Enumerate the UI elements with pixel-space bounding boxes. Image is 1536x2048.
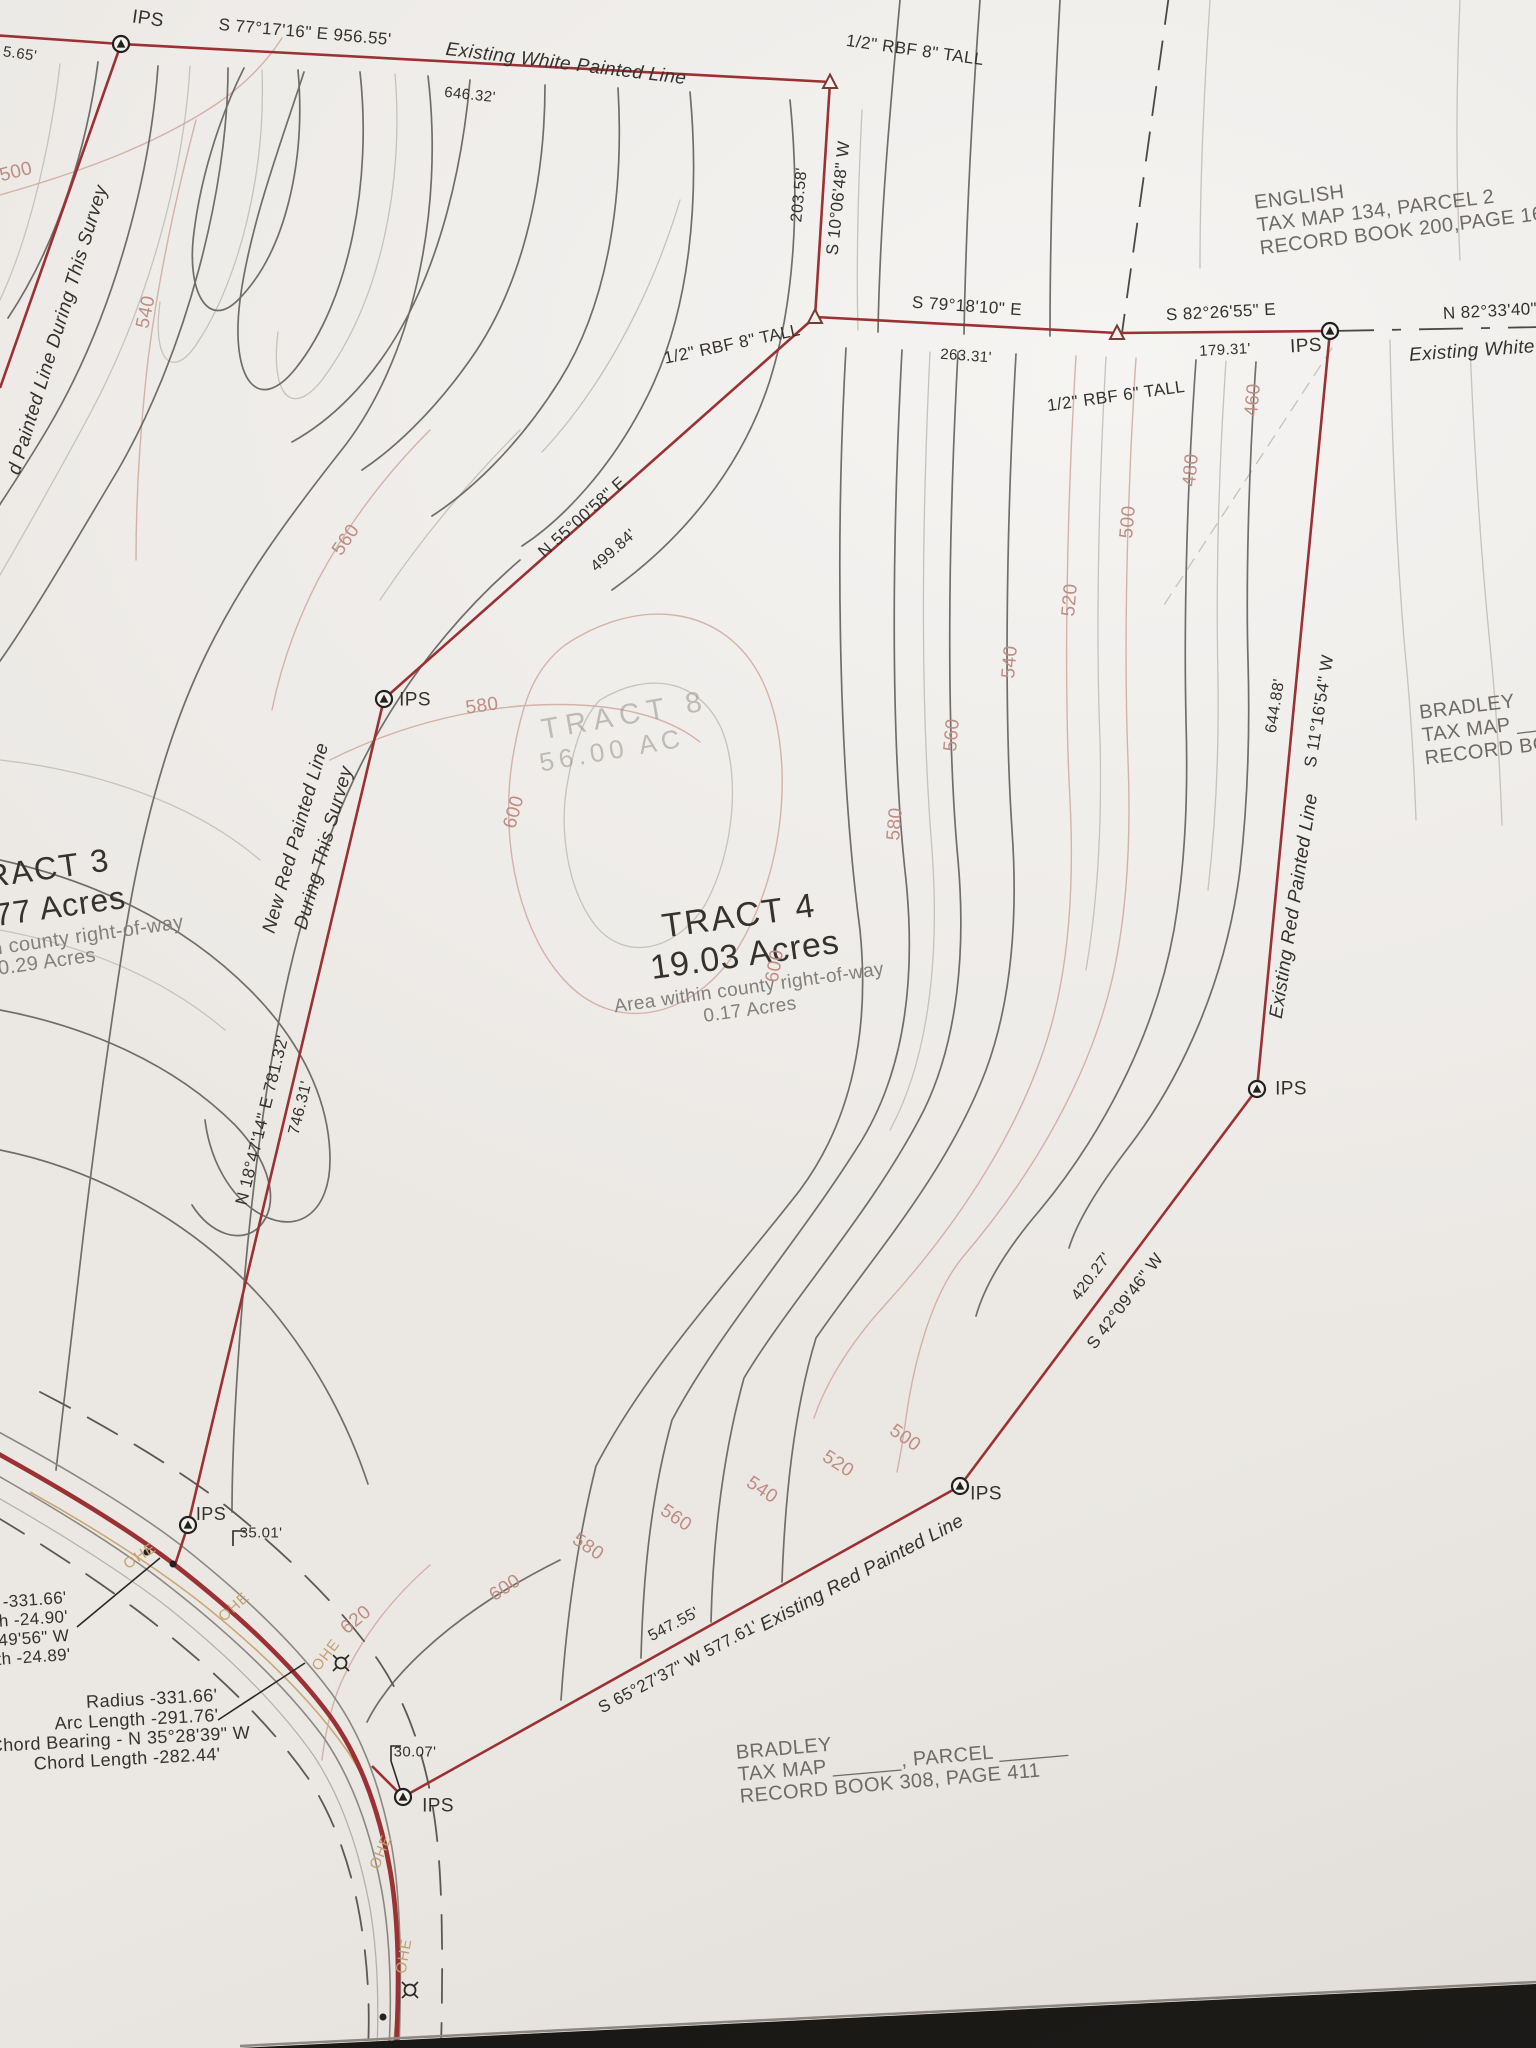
ips-marker [376, 691, 392, 707]
utility-pole-symbol [402, 1982, 418, 1998]
contour-elevation-label: 580 [464, 694, 499, 717]
ips-label: IPS [422, 1797, 454, 1816]
photo-edge-shadow [240, 1984, 1536, 2048]
ips-label: IPS [1275, 1080, 1307, 1099]
ips-marker [1322, 323, 1338, 339]
contour-elevation-label: 520 [1059, 583, 1081, 617]
ips-label: IPS [1290, 336, 1323, 357]
ips-label: IPS [399, 691, 431, 710]
distance-label: 30.07' [394, 1745, 437, 1760]
contour-elevation-label: 500 [1117, 505, 1139, 539]
curve-table-main: Radius -331.66' Arc Length -291.76' Chor… [0, 1686, 221, 1776]
ips-label: IPS [196, 1505, 226, 1523]
point-dot [170, 1561, 177, 1568]
ips-label: IPS [970, 1485, 1002, 1504]
contour-elevation-label: 480 [1180, 453, 1202, 487]
ips-marker [113, 36, 129, 52]
distance-label: 263.31' [940, 347, 992, 366]
distance-label: 179.31' [1199, 341, 1251, 359]
contour-elevation-label: 460 [1242, 383, 1264, 417]
ips-label: IPS [131, 7, 165, 30]
survey-plat-photo: 5.65' IPS S 77°17'16" E 956.55' Existing… [0, 0, 1536, 2048]
distance-label: 35.01' [240, 1526, 283, 1541]
contour-elevation-label: 580 [884, 807, 906, 841]
distance-label: 5.65' [2, 44, 38, 64]
adjoiner-dashed-line [1122, 0, 1169, 333]
white-line-east-dashed [1330, 327, 1536, 331]
curve-table-left-cut: -331.66' h -24.90' 49'56" W th -24.89' [0, 1588, 71, 1678]
point-dot [380, 2014, 387, 2021]
ips-marker [1249, 1081, 1265, 1097]
utility-pole-symbol [333, 1655, 349, 1671]
contour-elevation-label: 540 [999, 645, 1021, 679]
ips-marker [395, 1789, 411, 1805]
ips-marker [180, 1517, 196, 1533]
bearing-label: N 82°33'40" [1443, 300, 1536, 322]
contours-major [0, 0, 1256, 1722]
contour-elevation-label: 560 [941, 718, 963, 752]
ips-marker [952, 1478, 968, 1494]
